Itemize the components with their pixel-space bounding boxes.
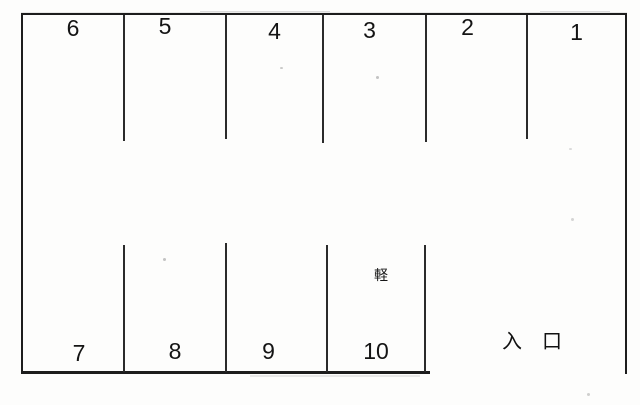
stall-number: 9: [219, 340, 318, 363]
stall-2: 2: [427, 15, 526, 141]
scan-smudge: [200, 11, 330, 12]
parking-lot-diagram: 6 5 4 3 2 1 7 8 9 軽 10 入 口: [0, 0, 640, 405]
scan-speck: [569, 148, 572, 150]
stall-10: 軽 10: [328, 246, 424, 371]
stall-number: 2: [418, 16, 517, 39]
stall-7: 7: [23, 246, 123, 371]
scan-smudge: [250, 375, 420, 377]
scan-speck: [571, 218, 574, 221]
stall-number: 5: [115, 15, 215, 38]
stall-9: 9: [227, 246, 326, 371]
scan-speck: [163, 258, 166, 261]
outer-border-right: [625, 13, 627, 374]
scan-speck: [376, 76, 379, 79]
stall-5: 5: [125, 15, 225, 141]
stall-number: 8: [125, 340, 225, 363]
stall-1: 1: [528, 15, 625, 141]
kei-vehicle-label: 軽: [333, 268, 429, 282]
stall-divider-bottom-10-end: [424, 245, 426, 372]
stall-number: 4: [227, 20, 322, 43]
stall-6: 6: [23, 15, 123, 141]
stall-number: 10: [328, 340, 424, 363]
scan-smudge: [540, 11, 610, 12]
stall-number: 1: [528, 21, 625, 44]
stall-4: 4: [227, 15, 322, 141]
stall-number: 6: [23, 17, 123, 40]
entrance-label: 入 口: [502, 332, 562, 352]
stall-3: 3: [324, 15, 425, 141]
scan-speck: [280, 67, 283, 69]
stall-number: 3: [319, 19, 420, 42]
entrance-area: 入 口: [430, 246, 625, 372]
stall-number: 7: [29, 342, 129, 365]
scan-speck: [587, 393, 590, 396]
stall-8: 8: [125, 246, 225, 371]
